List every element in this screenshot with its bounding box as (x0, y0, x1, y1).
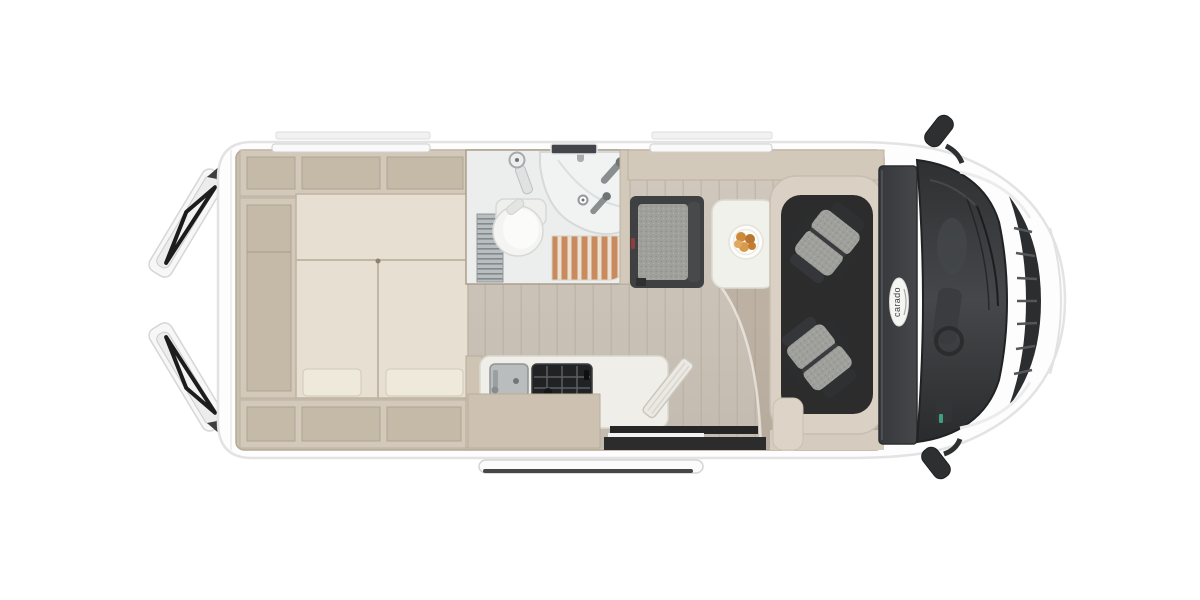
dash-panel (936, 396, 952, 422)
bench-backrest (688, 202, 700, 282)
dashboard: carado (879, 166, 917, 444)
bench-cushion (638, 204, 688, 280)
interior (236, 144, 884, 450)
lower-cabinet-box (247, 407, 295, 441)
bed-cushion (386, 369, 463, 396)
rear-doors (146, 164, 228, 436)
overhead-cabinet-box (302, 157, 380, 189)
bed-cushion (303, 369, 361, 396)
side-mirror-top (921, 112, 956, 150)
faucet-base (492, 387, 499, 394)
lower-cabinet-box (302, 407, 380, 441)
brand-logo-text: carado (892, 287, 902, 317)
wardrobe-column (240, 198, 298, 398)
green-sticker (939, 414, 943, 423)
bed-latch (376, 259, 381, 264)
bench-foot (636, 278, 646, 286)
door-threshold (604, 437, 766, 450)
two-burner-stove (532, 364, 592, 398)
side-bench (630, 196, 704, 288)
entry-step-shadow (483, 469, 693, 473)
dinette-window (650, 144, 772, 152)
kitchen-cabinet (468, 394, 600, 448)
double-bed (296, 194, 468, 398)
under-bed-cabinets (240, 400, 468, 448)
floorplan-svg: carado (0, 0, 1200, 600)
overhead-cabinets (240, 150, 468, 196)
door-pillar-panel (773, 398, 803, 450)
bathroom (466, 144, 630, 284)
stove-igniter (584, 370, 589, 380)
sink-faucet (493, 370, 498, 388)
bed-mattress (296, 194, 468, 398)
shower-slat-floor (552, 236, 622, 280)
roof-rail-front (652, 132, 772, 139)
cab-seating (770, 176, 884, 450)
sliding-door-opening (610, 426, 758, 434)
rear-window (272, 144, 430, 152)
overhead-cabinet-box (247, 157, 295, 189)
lower-cabinet-box (387, 407, 461, 441)
dash-cowl (937, 218, 967, 274)
bathroom-window (551, 144, 597, 154)
brand-logo: carado (890, 278, 909, 326)
rear-door-top (146, 166, 228, 280)
toilet-lid (503, 209, 539, 249)
food-item (734, 240, 742, 248)
bedroom (240, 144, 468, 448)
wardrobe-interior (247, 205, 291, 391)
dinette-table (712, 200, 775, 288)
floorplan-canvas: carado (0, 0, 1200, 600)
kitchen-sink (490, 364, 528, 397)
rear-door-bottom (146, 320, 228, 434)
roof-rail-rear (276, 132, 430, 139)
seatbelt-strap (631, 238, 635, 249)
food-item (748, 242, 756, 250)
grille-slat (1017, 323, 1037, 324)
grille-slat (1017, 278, 1037, 279)
sink-drain (513, 378, 519, 384)
drain-center (582, 199, 585, 202)
overhead-cabinet-box (387, 157, 463, 189)
hinge-pin (515, 158, 519, 162)
